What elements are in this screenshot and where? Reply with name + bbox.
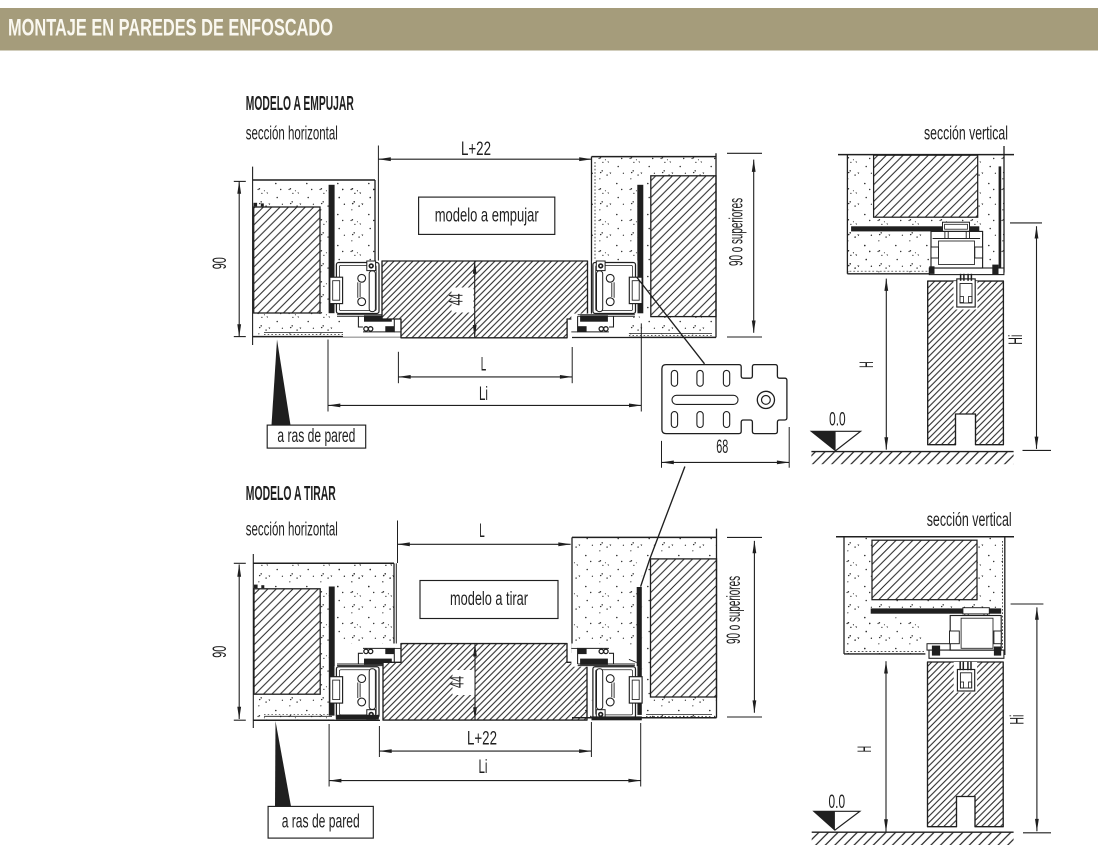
svg-text:modelo a tirar: modelo a tirar — [450, 589, 528, 610]
svg-text:a ras de pared: a ras de pared — [282, 812, 360, 833]
svg-text:Li: Li — [479, 757, 488, 778]
svg-text:H: H — [857, 361, 878, 368]
svg-text:Li: Li — [479, 384, 488, 405]
svg-text:44: 44 — [448, 676, 469, 688]
svg-text:L: L — [479, 521, 485, 542]
svg-text:H: H — [855, 746, 876, 753]
svg-text:MONTAJE EN PAREDES DE ENFOSCAD: MONTAJE EN PAREDES DE ENFOSCADO — [8, 15, 333, 42]
svg-text:a ras de pared: a ras de pared — [277, 426, 355, 447]
svg-text:L+22: L+22 — [467, 728, 497, 749]
svg-text:L: L — [481, 355, 487, 376]
svg-text:sección vertical: sección vertical — [927, 510, 1012, 531]
svg-text:0.0: 0.0 — [829, 410, 846, 431]
svg-text:modelo a empujar: modelo a empujar — [435, 206, 539, 227]
svg-text:L+22: L+22 — [461, 139, 491, 160]
svg-text:sección horizontal: sección horizontal — [246, 520, 338, 541]
svg-text:sección horizontal: sección horizontal — [246, 124, 338, 145]
svg-text:Hi: Hi — [1008, 715, 1029, 725]
svg-text:44: 44 — [447, 293, 468, 305]
svg-text:90 o superiores: 90 o superiores — [724, 576, 745, 644]
svg-text:68: 68 — [716, 437, 728, 458]
svg-text:Hi: Hi — [1006, 335, 1027, 345]
svg-text:90: 90 — [210, 257, 231, 269]
svg-text:0.0: 0.0 — [829, 792, 846, 813]
svg-text:MODELO A TIRAR: MODELO A TIRAR — [246, 483, 336, 505]
svg-text:sección vertical: sección vertical — [924, 124, 1008, 145]
svg-text:90 o superiores: 90 o superiores — [727, 198, 748, 266]
svg-text:90: 90 — [210, 646, 231, 658]
svg-text:MODELO A EMPUJAR: MODELO A EMPUJAR — [246, 93, 354, 115]
